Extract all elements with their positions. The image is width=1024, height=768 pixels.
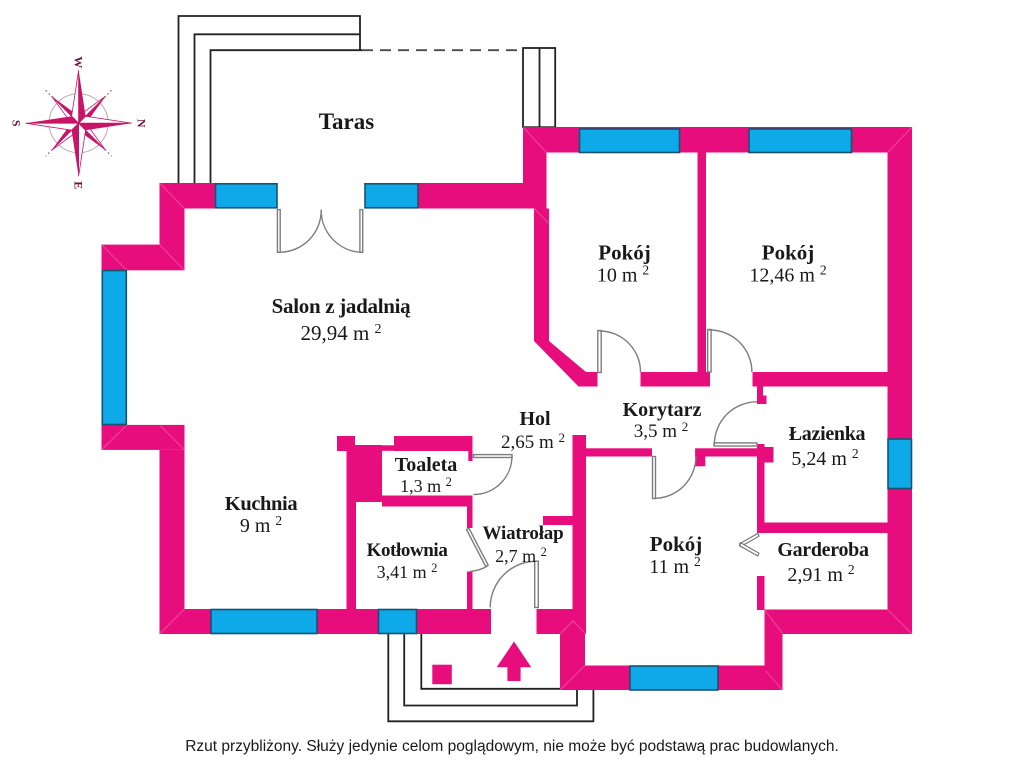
svg-text:2,65 m 2: 2,65 m 2: [501, 430, 565, 453]
svg-text:Pokój: Pokój: [762, 241, 815, 265]
svg-text:10 m 2: 10 m 2: [597, 263, 649, 287]
svg-text:Pokój: Pokój: [598, 241, 651, 265]
svg-text:2,7 m 2: 2,7 m 2: [495, 545, 547, 566]
svg-text:12,46 m 2: 12,46 m 2: [749, 263, 826, 287]
svg-text:E: E: [72, 181, 86, 189]
svg-text:Taras: Taras: [319, 109, 374, 134]
svg-text:Korytarz: Korytarz: [623, 399, 702, 421]
svg-text:3,5 m 2: 3,5 m 2: [634, 419, 689, 442]
svg-text:Salon z jadalnią: Salon z jadalnią: [272, 294, 412, 318]
svg-text:Toaleta: Toaleta: [395, 454, 458, 476]
svg-text:Wiatrołap: Wiatrołap: [483, 523, 564, 544]
svg-text:N: N: [135, 119, 149, 128]
svg-text:2,91 m 2: 2,91 m 2: [787, 562, 854, 586]
svg-text:3,41 m 2: 3,41 m 2: [377, 561, 438, 582]
svg-text:Hol: Hol: [519, 408, 551, 430]
svg-text:5,24 m 2: 5,24 m 2: [791, 446, 858, 470]
svg-text:29,94 m 2: 29,94 m 2: [300, 321, 381, 345]
svg-text:Kotłownia: Kotłownia: [367, 540, 449, 561]
svg-text:S: S: [10, 120, 24, 127]
svg-text:Garderoba: Garderoba: [777, 539, 869, 561]
svg-text:Pokój: Pokój: [650, 532, 703, 556]
svg-text:W: W: [72, 56, 86, 68]
svg-text:Kuchnia: Kuchnia: [225, 493, 298, 515]
svg-text:1,3 m 2: 1,3 m 2: [400, 475, 452, 496]
svg-text:Łazienka: Łazienka: [789, 423, 866, 445]
svg-text:Rzut przybliżony. Służy jedyni: Rzut przybliżony. Służy jedynie celom po…: [185, 738, 839, 755]
svg-text:11 m 2: 11 m 2: [649, 554, 701, 578]
